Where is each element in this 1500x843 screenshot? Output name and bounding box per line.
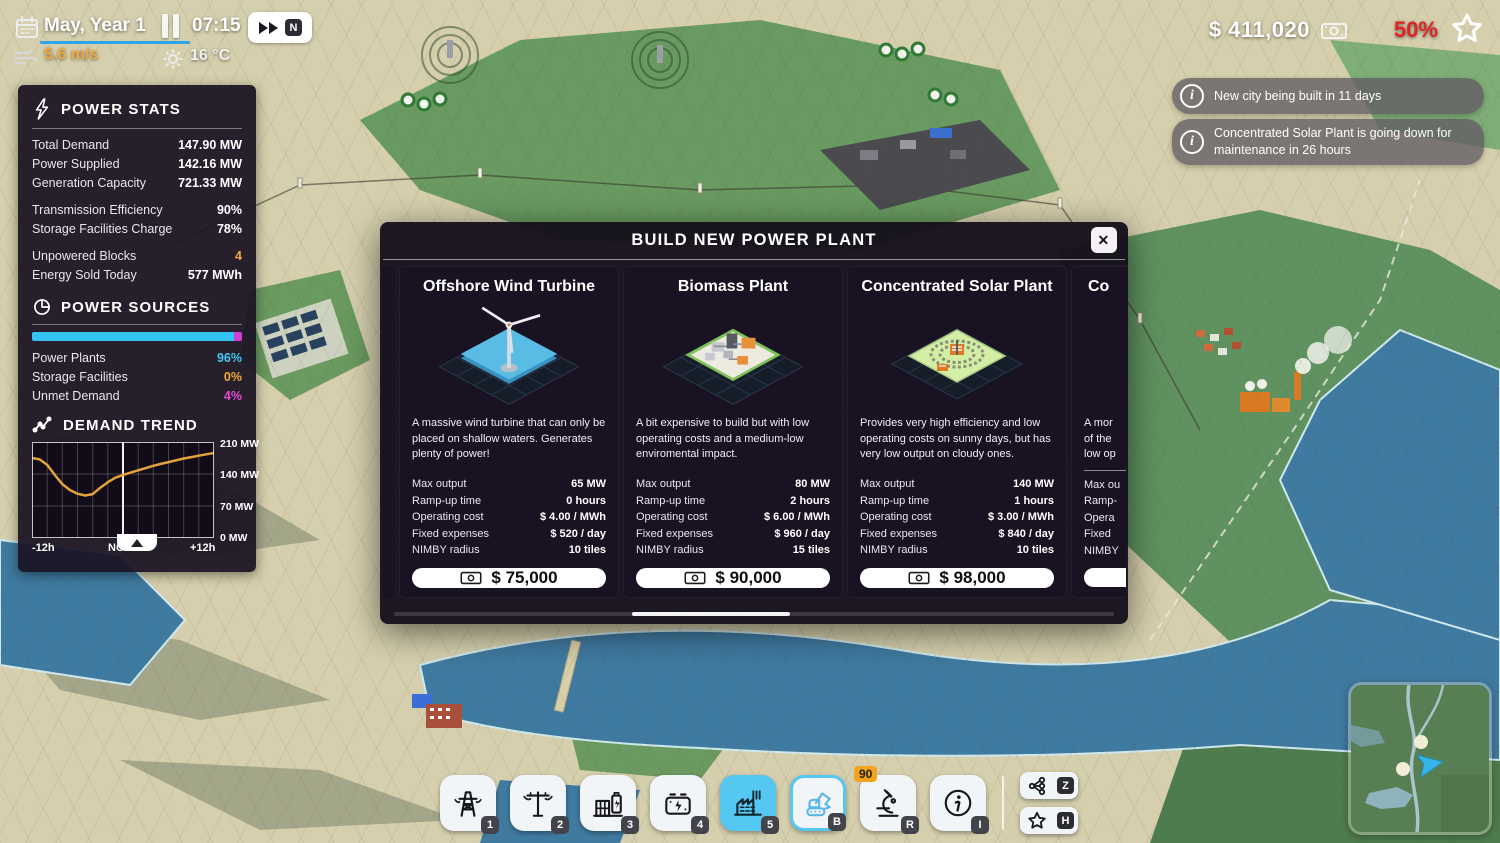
minimap[interactable] xyxy=(1348,682,1492,835)
stat-row: Transmission Efficiency90% xyxy=(32,201,242,220)
plant-card-description: A massive wind turbine that can only be … xyxy=(412,416,606,462)
plant-cards-row: Offshore Wind Turbine xyxy=(380,266,1126,598)
toolbar-excavator-button[interactable]: B xyxy=(790,775,846,831)
source-value: 96% xyxy=(217,349,242,368)
plant-card-image xyxy=(412,296,606,416)
plant-card-partial-left[interactable] xyxy=(382,266,395,598)
plant-card-title: Offshore Wind Turbine xyxy=(412,277,606,296)
notification[interactable]: i Concentrated Solar Plant is going down… xyxy=(1172,119,1484,165)
stat-row: Total Demand147.90 MW xyxy=(32,136,242,155)
source-row: Power Plants96% xyxy=(32,349,242,368)
y-axis-tick: 70 MW xyxy=(220,501,270,513)
plant-stat-row: Opera xyxy=(1084,510,1126,527)
plant-stat-row: Fixed expenses$ 960 / day xyxy=(636,526,830,543)
y-axis-tick: 210 MW xyxy=(220,438,270,450)
stat-label: Generation Capacity xyxy=(32,174,146,193)
toolbar-info-button[interactable]: I xyxy=(930,775,986,831)
build-power-plant-modal: BUILD NEW POWER PLANT ✕ Offshore Wind Tu… xyxy=(380,222,1128,624)
date-underline xyxy=(40,41,190,44)
notification-message: New city being built in 11 days xyxy=(1214,88,1381,105)
stat-label: Storage Facilities Charge xyxy=(32,220,172,239)
y-axis-tick: 0 MW xyxy=(220,532,270,544)
minimap-city-dot xyxy=(1414,735,1428,749)
star-icon xyxy=(1027,811,1047,831)
plant-stat-row: Operating cost$ 3.00 / MWh xyxy=(860,509,1054,526)
toolbar-substation-button[interactable]: 3 xyxy=(580,775,636,831)
game-date[interactable]: May, Year 1 xyxy=(44,15,146,37)
y-axis-tick: 140 MW xyxy=(220,469,270,481)
pause-button[interactable] xyxy=(162,14,179,38)
power-stats-header: POWER STATS xyxy=(32,97,242,121)
favorites-button[interactable]: H xyxy=(1020,807,1078,834)
buy-button[interactable] xyxy=(1084,568,1126,587)
stat-label: Unpowered Blocks xyxy=(32,247,136,266)
money-icon xyxy=(684,571,706,585)
info-icon xyxy=(941,786,975,820)
stat-label: Energy Sold Today xyxy=(32,266,137,285)
build-toolbar: 1 2 3 4 5 xyxy=(440,772,1078,834)
buy-button[interactable]: $ 98,000 xyxy=(860,568,1054,588)
plant-stat-row: Fixed expenses$ 840 / day xyxy=(860,526,1054,543)
stat-value: 142.16 MW xyxy=(178,155,242,174)
toolbar-power-plant-button[interactable]: 5 xyxy=(720,775,776,831)
connections-button[interactable]: Z xyxy=(1020,772,1078,799)
x-axis-tick: -12h xyxy=(32,542,55,554)
plant-stat-row: Ramp-up time1 hours xyxy=(860,493,1054,510)
plant-stat-row: NIMBY xyxy=(1084,543,1126,560)
source-label: Storage Facilities xyxy=(32,368,128,387)
plant-card-title: Co xyxy=(1084,277,1126,296)
stat-label: Transmission Efficiency xyxy=(32,201,163,220)
plant-card-description: A mor of the low op xyxy=(1084,416,1126,462)
game-time: 07:15 xyxy=(192,15,241,37)
hotkey-badge: Z xyxy=(1057,777,1074,794)
hotkey-badge: I xyxy=(971,816,989,834)
plant-card-title: Concentrated Solar Plant xyxy=(860,277,1054,296)
hotkey-badge: 4 xyxy=(691,816,709,834)
plant-stat-row: Max output140 MW xyxy=(860,476,1054,493)
minimap-terrain xyxy=(1351,685,1489,832)
modal-header: BUILD NEW POWER PLANT ✕ xyxy=(383,222,1125,260)
stat-value: 90% xyxy=(217,201,242,220)
plant-stat-row: NIMBY radius10 tiles xyxy=(860,542,1054,559)
plant-stat-row: Ramp-up time2 hours xyxy=(636,493,830,510)
money-balance: $ 411,020 xyxy=(1209,17,1310,43)
concentrated-solar-illustration xyxy=(882,304,1032,408)
plant-card-image xyxy=(860,296,1054,416)
money-icon xyxy=(1320,20,1350,40)
close-icon: ✕ xyxy=(1098,232,1111,249)
pause-icon xyxy=(173,14,179,38)
toolbar-transmission-tower-button[interactable]: 1 xyxy=(440,775,496,831)
panel-collapse-button[interactable] xyxy=(117,534,157,551)
money-icon xyxy=(908,571,930,585)
demand-trend-title: DEMAND TREND xyxy=(63,417,198,434)
divider xyxy=(1084,470,1126,471)
info-icon: i xyxy=(1180,84,1204,108)
stat-row: Power Supplied142.16 MW xyxy=(32,155,242,174)
stat-row: Generation Capacity721.33 MW xyxy=(32,174,242,193)
notification[interactable]: i New city being built in 11 days xyxy=(1172,78,1484,114)
transmission-tower-icon xyxy=(451,786,485,820)
source-row: Unmet Demand4% xyxy=(32,387,242,406)
buy-button[interactable]: $ 90,000 xyxy=(636,568,830,588)
x-axis-tick: +12h xyxy=(190,542,215,554)
temperature: 16 °C xyxy=(190,47,230,65)
power-stats-title: POWER STATS xyxy=(61,101,181,118)
plant-card-title: Biomass Plant xyxy=(636,277,830,296)
source-label: Power Plants xyxy=(32,349,106,368)
sun-icon xyxy=(162,48,184,70)
stat-value: 577 MWh xyxy=(188,266,242,285)
plant-stat-row: Max ou xyxy=(1084,477,1126,494)
plant-price: $ 90,000 xyxy=(715,568,781,588)
share-icon xyxy=(1027,776,1047,796)
toolbar-research-button[interactable]: 90 R xyxy=(860,775,916,831)
plant-card-description: Provides very high efficiency and low op… xyxy=(860,416,1054,462)
plant-stat-row: Fixed xyxy=(1084,526,1126,543)
plant-stat-row: Ramp-up time0 hours xyxy=(412,493,606,510)
hotkey-badge: 2 xyxy=(551,816,569,834)
hotkey-badge: B xyxy=(828,813,846,831)
demand-trend-plot xyxy=(32,442,214,538)
plant-stat-row: NIMBY radius15 tiles xyxy=(636,542,830,559)
stat-value: 147.90 MW xyxy=(178,136,242,155)
plant-card-partial-right[interactable]: Co A mor of the low op Max ou Ramp- Oper… xyxy=(1071,266,1126,598)
plant-price: $ 75,000 xyxy=(491,568,557,588)
substation-icon xyxy=(591,786,625,820)
close-button[interactable]: ✕ xyxy=(1091,227,1117,253)
stat-label: Power Supplied xyxy=(32,155,120,174)
hotkey-badge: 5 xyxy=(761,816,779,834)
lightning-bolt-icon xyxy=(32,97,52,121)
plant-card-image xyxy=(636,296,830,416)
power-plant-icon xyxy=(731,786,765,820)
toolbar-battery-button[interactable]: 4 xyxy=(650,775,706,831)
wind-icon xyxy=(13,47,39,69)
hotkey-badge: 1 xyxy=(481,816,499,834)
stat-value: 4 xyxy=(235,247,242,266)
plant-stat-row: Max output65 MW xyxy=(412,476,606,493)
fast-forward-button[interactable]: N xyxy=(248,12,312,43)
stat-value: 721.33 MW xyxy=(178,174,242,193)
hotkey-badge: R xyxy=(901,816,919,834)
plant-card-description: A bit expensive to build but with low op… xyxy=(636,416,830,462)
trend-line-icon xyxy=(32,416,54,434)
power-pole-icon xyxy=(521,786,555,820)
power-sources-title: POWER SOURCES xyxy=(61,299,210,316)
plant-card-offshore-wind[interactable]: Offshore Wind Turbine xyxy=(399,266,619,598)
plant-card-biomass[interactable]: Biomass Plant xyxy=(623,266,843,598)
stat-value: 78% xyxy=(217,220,242,239)
modal-title: BUILD NEW POWER PLANT xyxy=(631,231,876,250)
toolbar-divider xyxy=(1002,776,1004,830)
power-sources-bar-plants xyxy=(32,332,234,341)
notification-message: Concentrated Solar Plant is going down f… xyxy=(1214,125,1470,159)
plant-price: $ 98,000 xyxy=(939,568,1005,588)
stat-label: Total Demand xyxy=(32,136,109,155)
toolbar-side-buttons: Z H xyxy=(1020,772,1078,834)
hotkey-badge: H xyxy=(1057,812,1074,829)
speed-key-badge: N xyxy=(285,19,302,36)
research-counter-badge: 90 xyxy=(854,766,877,782)
power-sources-bar xyxy=(32,332,242,341)
plant-stat-row: Ramp- xyxy=(1084,493,1126,510)
divider xyxy=(32,128,242,129)
source-value: 4% xyxy=(224,387,242,406)
cards-scrollbar-thumb[interactable] xyxy=(632,612,790,616)
info-icon: i xyxy=(1180,130,1204,154)
plant-stat-row: Fixed expenses$ 520 / day xyxy=(412,526,606,543)
star-rating-icon[interactable] xyxy=(1450,12,1484,46)
plant-stat-row: NIMBY radius10 tiles xyxy=(412,542,606,559)
plant-stat-row: Operating cost$ 4.00 / MWh xyxy=(412,509,606,526)
plant-stat-row: Max output80 MW xyxy=(636,476,830,493)
buy-button[interactable]: $ 75,000 xyxy=(412,568,606,588)
hotkey-badge: 3 xyxy=(621,816,639,834)
divider xyxy=(32,324,242,325)
wind-speed: 5.6 m/s xyxy=(44,46,98,64)
battery-icon xyxy=(661,786,695,820)
power-sources-bar-unmet xyxy=(234,332,242,341)
power-sources-header: POWER SOURCES xyxy=(32,297,242,317)
money-icon xyxy=(460,571,482,585)
pause-icon xyxy=(162,14,168,38)
stat-row: Storage Facilities Charge78% xyxy=(32,220,242,239)
plant-stat-row: Operating cost$ 6.00 / MWh xyxy=(636,509,830,526)
pie-chart-icon xyxy=(32,297,52,317)
cards-scrollbar[interactable] xyxy=(394,612,1114,616)
stat-row: Unpowered Blocks4 xyxy=(32,247,242,266)
calendar-icon xyxy=(14,14,40,40)
fast-forward-icon xyxy=(258,21,280,35)
power-stats-panel: POWER STATS Total Demand147.90 MW Power … xyxy=(18,85,256,572)
minimap-city-dot xyxy=(1396,762,1410,776)
offshore-wind-turbine-illustration xyxy=(434,297,584,415)
approval-rating: 50% xyxy=(1394,17,1438,43)
stat-row: Energy Sold Today577 MWh xyxy=(32,266,242,285)
source-label: Unmet Demand xyxy=(32,387,120,406)
source-row: Storage Facilities0% xyxy=(32,368,242,387)
microscope-icon xyxy=(871,786,905,820)
plant-card-concentrated-solar[interactable]: Concentrated Solar Plant xyxy=(847,266,1067,598)
collapse-arrow-icon xyxy=(131,539,143,547)
demand-trend-header: DEMAND TREND xyxy=(32,416,242,434)
biomass-plant-illustration xyxy=(658,297,808,415)
toolbar-power-pole-button[interactable]: 2 xyxy=(510,775,566,831)
source-value: 0% xyxy=(224,368,242,387)
plant-card-image xyxy=(1084,296,1126,416)
